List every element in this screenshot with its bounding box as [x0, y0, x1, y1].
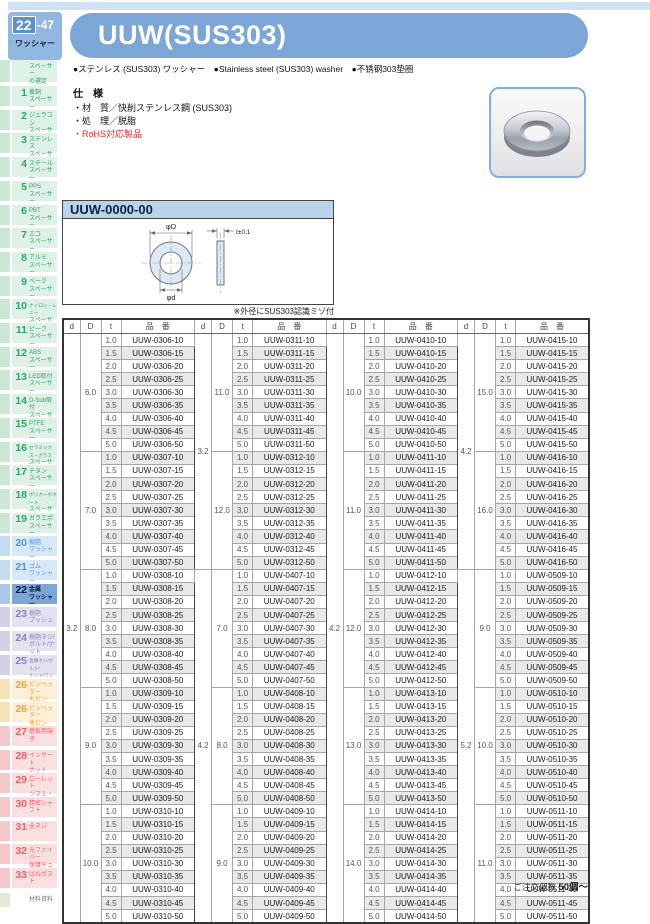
cell-thickness: 4.0 [101, 766, 121, 779]
cell-thickness: 4.0 [233, 648, 253, 661]
cell-part-number: UUW-0309-10 [121, 687, 195, 700]
sidebar-item-number: 17 [13, 467, 27, 486]
cell-thickness: 1.5 [364, 347, 384, 360]
sidebar-item-color-tab [0, 893, 10, 907]
sidebar-item-label: ピンヘッダー角ピン [27, 704, 57, 723]
cell-thickness: 1.5 [233, 582, 253, 595]
cell-part-number: UUW-0413-30 [384, 739, 458, 752]
cell-thickness: 1.0 [101, 569, 121, 582]
sidebar-item-body: 26ピンヘッダー角ピン [12, 702, 57, 722]
sidebar-item-label: チタンスペーサー [27, 467, 57, 486]
cell-thickness: 4.0 [101, 648, 121, 661]
cell-thickness: 2.0 [101, 360, 121, 373]
cell-part-number: UUW-0409-45 [253, 897, 327, 910]
sidebar-item-color-tab [0, 750, 10, 770]
cell-part-number: UUW-0410-35 [384, 399, 458, 412]
sidebar-item-color-tab [0, 844, 10, 864]
sidebar-item-label: 黄銅スペーサー [27, 88, 57, 107]
cell-part-number: UUW-0416-40 [516, 530, 590, 543]
sidebar-item-7-6[interactable]: 7エコスペーサー [0, 228, 57, 248]
cell-outer-diameter: 10.0 [475, 687, 496, 805]
cell-part-number: UUW-0306-45 [121, 425, 195, 438]
cell-part-number: UUW-0409-20 [253, 831, 327, 844]
sidebar-item-2-1[interactable]: 2ジュラコンスペーサー [0, 110, 57, 130]
sidebar-item-color-tab [0, 631, 10, 651]
cell-part-number: UUW-0410-15 [384, 347, 458, 360]
cell-thickness: 1.5 [233, 464, 253, 477]
sidebar-item-17-16[interactable]: 17チタンスペーサー [0, 465, 57, 485]
cell-part-number: UUW-0306-40 [121, 412, 195, 425]
cell-part-number: UUW-0510-40 [516, 766, 590, 779]
cell-part-number: UUW-0414-15 [384, 818, 458, 831]
sidebar-item-23-22[interactable]: 23樹脂ブッシュ [0, 607, 57, 627]
sidebar-item-11-10[interactable]: 11ピークスペーサー [0, 323, 57, 343]
sidebar-item-24-23[interactable]: 24樹脂ネジ/ボルト/ナット [0, 631, 57, 651]
cell-thickness: 1.5 [233, 700, 253, 713]
cell-outer-diameter: 15.0 [475, 334, 496, 452]
col-header-D: D [343, 319, 364, 334]
sidebar-item-number: 2 [13, 111, 27, 130]
cell-part-number: UUW-0414-25 [384, 844, 458, 857]
cell-thickness: 2.0 [233, 478, 253, 491]
sidebar-item-20-19[interactable]: 20樹脂ワッシャー [0, 536, 57, 556]
cell-part-number: UUW-0412-15 [384, 582, 458, 595]
sidebar-item-body: 15PTFEスペーサー [12, 418, 57, 438]
cell-thickness: 1.0 [101, 334, 121, 347]
cell-part-number: UUW-0407-45 [253, 661, 327, 674]
cell-part-number: UUW-0510-10 [516, 687, 590, 700]
spec-block: 仕 様 ・材 質／快削ステンレス鋼 (SUS303) ・処 理／脱脂 ・RoHS… [73, 85, 403, 141]
cell-part-number: UUW-0510-50 [516, 792, 590, 805]
cell-outer-diameter: 12.0 [212, 451, 233, 569]
cell-part-number: UUW-0312-45 [253, 543, 327, 556]
sidebar-item-25-24[interactable]: 25金属ネジ/ボルト/ナット/ワッシャー [0, 655, 57, 675]
cell-part-number: UUW-0311-35 [253, 399, 327, 412]
sidebar-item-color-tab [0, 679, 10, 699]
cell-thickness: 2.5 [101, 726, 121, 739]
sidebar-item-label: PPSスペーサー [27, 182, 57, 201]
cell-thickness: 4.5 [496, 779, 516, 792]
col-header-part: 品 番 [253, 319, 327, 334]
cell-part-number: UUW-0311-30 [253, 386, 327, 399]
cell-part-number: UUW-0307-45 [121, 543, 195, 556]
sidebar-item-number: 8 [13, 253, 27, 272]
cell-part-number: UUW-0310-15 [121, 818, 195, 831]
sidebar-item-14-13[interactable]: 14D-Sub取付スペーサー [0, 394, 57, 414]
cell-thickness: 3.5 [496, 517, 516, 530]
sidebar-item-color-tab [0, 513, 10, 533]
cell-thickness: 2.0 [364, 595, 384, 608]
sidebar-item-color-tab [0, 394, 10, 414]
sidebar-item-color-tab [0, 157, 10, 177]
sidebar-item-number: 23 [13, 609, 27, 628]
cell-thickness: 1.5 [364, 464, 384, 477]
sidebar-item-22-21[interactable]: 22金属ワッシャー [0, 584, 57, 604]
sidebar-item-color-tab [0, 489, 10, 509]
cell-part-number: UUW-0510-20 [516, 713, 590, 726]
cell-part-number: UUW-0416-25 [516, 491, 590, 504]
cell-part-number: UUW-0309-20 [121, 713, 195, 726]
cell-part-number: UUW-0307-50 [121, 556, 195, 569]
sidebar-item-29-29[interactable]: 29ローレットツマミ・ナット [0, 773, 57, 793]
cell-part-number: UUW-0416-10 [516, 451, 590, 464]
sidebar-item-body: 材料資料 [12, 893, 57, 907]
sidebar-item-color-tab [0, 60, 10, 82]
sidebar-item-spacer-selection[interactable]: スペーサーの選定 [0, 60, 57, 82]
sidebar-item-26-26[interactable]: 26ピンヘッダー角ピン [0, 702, 57, 722]
sidebar-item-color-tab [0, 205, 10, 225]
sidebar-item-30-30[interactable]: 30精密シャフト [0, 797, 57, 817]
col-header-D: D [212, 319, 233, 334]
sidebar-item-body: 31全ネジ [12, 821, 57, 841]
sidebar-item-body: 20樹脂ワッシャー [12, 536, 57, 556]
cell-thickness: 5.0 [496, 910, 516, 924]
cell-thickness: 5.0 [364, 556, 384, 569]
cell-thickness: 4.0 [364, 412, 384, 425]
cell-thickness: 3.5 [364, 517, 384, 530]
cell-part-number: UUW-0306-30 [121, 386, 195, 399]
cell-part-number: UUW-0312-40 [253, 530, 327, 543]
sidebar-item-body: スペーサーの選定 [12, 60, 57, 82]
cell-thickness: 2.0 [364, 713, 384, 726]
sidebar-item-10-9[interactable]: 10ナイロン・レニースペーサー [0, 299, 57, 319]
cell-thickness: 2.0 [101, 713, 121, 726]
cell-part-number: UUW-0415-10 [516, 334, 590, 347]
sidebar-item-body: 17チタンスペーサー [12, 465, 57, 485]
cell-thickness: 2.5 [364, 608, 384, 621]
cell-part-number: UUW-0509-10 [516, 569, 590, 582]
sidebar-item-body: 33ばねポスト [12, 868, 57, 888]
sidebar-item-color-tab [0, 133, 10, 153]
sidebar-item-body: 1黄銅スペーサー [12, 86, 57, 106]
cell-part-number: UUW-0310-45 [121, 897, 195, 910]
sidebar-item-number: 22 [13, 585, 27, 604]
sidebar-item-label: スペーサーの選定 [27, 62, 57, 83]
sidebar-item-color-tab [0, 655, 10, 675]
cell-thickness: 1.0 [496, 805, 516, 818]
cell-inner-diameter: 3.2 [63, 334, 80, 924]
cell-thickness: 2.0 [496, 831, 516, 844]
cell-part-number: UUW-0308-20 [121, 595, 195, 608]
drawing-note: ※外径にSUS303認識ミゾ付 [62, 306, 334, 317]
sidebar-item-3-2[interactable]: 3ステンレススペーサー [0, 133, 57, 153]
col-header-D: D [475, 319, 496, 334]
cell-part-number: UUW-0411-35 [384, 517, 458, 530]
col-header-d: d [63, 319, 80, 334]
cell-outer-diameter: 12.0 [343, 569, 364, 687]
product-description-bullets: ●ステンレス (SUS303) ワッシャー ●Stainless steel (… [73, 63, 543, 75]
washer-drawing: φD φd t±0.1 [63, 219, 332, 302]
sidebar-item-label: 金属ワッシャー [27, 585, 57, 604]
cell-thickness: 4.0 [233, 412, 253, 425]
cell-outer-diameter: 9.0 [80, 687, 101, 805]
cell-part-number: UUW-0510-30 [516, 739, 590, 752]
cell-thickness: 2.5 [101, 608, 121, 621]
cell-thickness: 5.0 [496, 792, 516, 805]
cell-part-number: UUW-0306-35 [121, 399, 195, 412]
cell-outer-diameter: 14.0 [343, 805, 364, 923]
cell-part-number: UUW-0407-35 [253, 635, 327, 648]
cell-inner-diameter: 4.2 [195, 569, 212, 923]
cell-thickness: 1.5 [101, 818, 121, 831]
cell-thickness: 3.0 [364, 386, 384, 399]
cell-thickness: 2.5 [233, 726, 253, 739]
col-header-part: 品 番 [516, 319, 590, 334]
cell-part-number: UUW-0409-50 [253, 910, 327, 924]
sidebar-item-number: 21 [13, 562, 27, 581]
cell-thickness: 4.5 [496, 543, 516, 556]
sidebar-item-material-reference[interactable]: 材料資料 [0, 893, 57, 907]
sidebar-item-number: 26 [13, 680, 27, 699]
cell-part-number: UUW-0412-10 [384, 569, 458, 582]
cell-thickness: 2.0 [364, 360, 384, 373]
page-category: ワッシャー [8, 38, 62, 49]
cell-outer-diameter: 9.0 [212, 805, 233, 923]
sidebar-item-12-11[interactable]: 12ABSスペーサー [0, 347, 57, 367]
cell-inner-diameter: 5.2 [458, 569, 475, 923]
cell-thickness: 5.0 [364, 438, 384, 451]
cell-part-number: UUW-0311-45 [253, 425, 327, 438]
sidebar-item-21-20[interactable]: 21ゴムワッシャー [0, 560, 57, 580]
spec-heading: 仕 様 [73, 85, 403, 100]
sidebar-item-31-31[interactable]: 31全ネジ [0, 821, 57, 841]
cell-thickness: 2.5 [364, 491, 384, 504]
sidebar-item-16-15[interactable]: 16セラミックス・ガラススペーサー [0, 442, 57, 462]
cell-thickness: 2.5 [496, 491, 516, 504]
sidebar-item-19-18[interactable]: 19ガラエポスペーサー [0, 513, 57, 533]
sidebar-item-label: ベークスペーサー [27, 277, 57, 296]
cell-thickness: 1.0 [364, 334, 384, 347]
sidebar-item-number: 9 [13, 277, 27, 296]
cell-outer-diameter: 7.0 [212, 569, 233, 687]
col-header-part: 品 番 [121, 319, 195, 334]
washer-photo-graphic [491, 89, 584, 176]
cell-part-number: UUW-0413-45 [384, 779, 458, 792]
cell-thickness: 2.5 [101, 491, 121, 504]
cell-part-number: UUW-0414-20 [384, 831, 458, 844]
cell-part-number: UUW-0307-20 [121, 478, 195, 491]
cell-thickness: 2.5 [233, 844, 253, 857]
cell-thickness: 3.5 [364, 399, 384, 412]
sidebar-item-number: 30 [13, 799, 27, 818]
cell-part-number: UUW-0308-50 [121, 674, 195, 687]
sidebar-item-32-32[interactable]: 32光ファイバー保護チューブ [0, 844, 57, 864]
cell-part-number: UUW-0311-20 [253, 360, 327, 373]
cell-thickness: 5.0 [233, 438, 253, 451]
cell-part-number: UUW-0309-40 [121, 766, 195, 779]
sidebar-item-1-0[interactable]: 1黄銅スペーサー [0, 86, 57, 106]
cell-part-number: UUW-0310-10 [121, 805, 195, 818]
cell-part-number: UUW-0407-10 [253, 569, 327, 582]
sidebar-item-body: 11ピークスペーサー [12, 323, 57, 343]
part-number-format-header: UUW-0000-00 [62, 200, 334, 219]
cell-thickness: 4.5 [364, 425, 384, 438]
cell-thickness: 3.5 [364, 635, 384, 648]
sidebar-item-color-tab [0, 252, 10, 272]
cell-part-number: UUW-0509-40 [516, 648, 590, 661]
cell-part-number: UUW-0511-45 [516, 897, 590, 910]
col-header-d: d [326, 319, 343, 334]
sidebar-item-5-4[interactable]: 5PPSスペーサー [0, 181, 57, 201]
sidebar-item-color-tab [0, 442, 10, 462]
sidebar-item-body: 12ABSスペーサー [12, 347, 57, 367]
cell-thickness: 2.0 [101, 831, 121, 844]
cell-thickness: 2.0 [233, 360, 253, 373]
cell-part-number: UUW-0408-20 [253, 713, 327, 726]
cell-part-number: UUW-0306-50 [121, 438, 195, 451]
cell-part-number: UUW-0412-20 [384, 595, 458, 608]
sidebar-item-label: 樹脂ブッシュ [27, 609, 53, 628]
sidebar-item-number: 7 [13, 230, 27, 249]
cell-part-number: UUW-0312-35 [253, 517, 327, 530]
sidebar-item-body: 8アルミスペーサー [12, 252, 57, 272]
cell-part-number: UUW-0410-45 [384, 425, 458, 438]
cell-thickness: 3.5 [233, 635, 253, 648]
cell-thickness: 2.0 [101, 595, 121, 608]
cell-part-number: UUW-0309-15 [121, 700, 195, 713]
cell-thickness: 1.0 [364, 569, 384, 582]
sidebar-item-4-3[interactable]: 4スチールスペーサー [0, 157, 57, 177]
cell-thickness: 3.0 [101, 386, 121, 399]
title-banner: UUW(SUS303) [70, 13, 588, 58]
cell-thickness: 4.0 [233, 530, 253, 543]
cell-thickness: 1.5 [101, 347, 121, 360]
cell-part-number: UUW-0416-30 [516, 504, 590, 517]
cell-part-number: UUW-0411-30 [384, 504, 458, 517]
cell-part-number: UUW-0310-20 [121, 831, 195, 844]
cell-thickness: 2.0 [233, 595, 253, 608]
sidebar-item-label: スチールスペーサー [27, 159, 57, 178]
cell-part-number: UUW-0407-50 [253, 674, 327, 687]
sidebar-item-body: 22金属ワッシャー [12, 584, 57, 604]
cell-part-number: UUW-0306-10 [121, 334, 195, 347]
cell-thickness: 3.0 [496, 857, 516, 870]
cell-thickness: 1.5 [233, 818, 253, 831]
sidebar-item-number: 32 [13, 846, 27, 865]
cell-part-number: UUW-0509-45 [516, 661, 590, 674]
sidebar-item-27-27[interactable]: 27基板用端子 [0, 726, 57, 746]
sidebar-item-13-12[interactable]: 13LED取付スペーサー [0, 370, 57, 390]
cell-part-number: UUW-0307-35 [121, 517, 195, 530]
cell-thickness: 5.0 [101, 438, 121, 451]
cell-thickness: 4.5 [364, 543, 384, 556]
cell-part-number: UUW-0415-25 [516, 373, 590, 386]
cell-thickness: 3.5 [101, 635, 121, 648]
cell-part-number: UUW-0409-30 [253, 857, 327, 870]
cell-thickness: 2.0 [364, 478, 384, 491]
cell-thickness: 1.0 [364, 805, 384, 818]
cell-part-number: UUW-0310-40 [121, 883, 195, 896]
cell-part-number: UUW-0407-15 [253, 582, 327, 595]
cell-part-number: UUW-0308-10 [121, 569, 195, 582]
sidebar-item-26-25[interactable]: 26ピンヘッダー丸ピン [0, 679, 57, 699]
cell-thickness: 1.0 [233, 334, 253, 347]
cell-thickness: 2.0 [233, 831, 253, 844]
sidebar-item-8-7[interactable]: 8アルミスペーサー [0, 252, 57, 272]
cell-part-number: UUW-0411-50 [384, 556, 458, 569]
cell-thickness: 5.0 [496, 438, 516, 451]
sidebar-item-33-33[interactable]: 33ばねポスト [0, 868, 57, 888]
cell-thickness: 2.5 [233, 491, 253, 504]
sidebar-item-body: 7エコスペーサー [12, 228, 57, 248]
cell-thickness: 5.0 [233, 674, 253, 687]
cell-part-number: UUW-0307-10 [121, 451, 195, 464]
cell-part-number: UUW-0308-25 [121, 608, 195, 621]
cell-part-number: UUW-0416-50 [516, 556, 590, 569]
cell-thickness: 1.0 [101, 687, 121, 700]
cell-thickness: 4.0 [233, 883, 253, 896]
sidebar-item-body: 19ガラエポスペーサー [12, 513, 57, 533]
sidebar-item-number [13, 62, 27, 83]
cell-part-number: UUW-0416-15 [516, 464, 590, 477]
cell-thickness: 3.0 [364, 739, 384, 752]
cell-thickness: 3.0 [364, 857, 384, 870]
sidebar-item-number: 11 [13, 325, 27, 344]
cell-thickness: 2.5 [496, 726, 516, 739]
cell-part-number: UUW-0510-15 [516, 700, 590, 713]
sidebar-item-9-8[interactable]: 9ベークスペーサー [0, 276, 57, 296]
cell-thickness: 1.5 [101, 582, 121, 595]
cell-outer-diameter: 8.0 [212, 687, 233, 805]
cell-part-number: UUW-0416-20 [516, 478, 590, 491]
cell-thickness: 4.0 [101, 883, 121, 896]
cell-part-number: UUW-0411-45 [384, 543, 458, 556]
page-title: UUW(SUS303) [70, 20, 287, 51]
cell-part-number: UUW-0415-30 [516, 386, 590, 399]
cell-part-number: UUW-0408-40 [253, 766, 327, 779]
table-row: 3.26.01.0UUW-0306-103.211.01.0UUW-0311-1… [63, 334, 589, 347]
sidebar-item-color-tab [0, 418, 10, 438]
cell-thickness: 4.5 [364, 897, 384, 910]
cell-part-number: UUW-0413-10 [384, 687, 458, 700]
cell-part-number: UUW-0310-25 [121, 844, 195, 857]
cell-part-number: UUW-0312-50 [253, 556, 327, 569]
cell-thickness: 5.0 [233, 910, 253, 924]
cell-part-number: UUW-0408-25 [253, 726, 327, 739]
cell-thickness: 1.5 [233, 347, 253, 360]
cell-part-number: UUW-0511-15 [516, 818, 590, 831]
cell-part-number: UUW-0411-20 [384, 478, 458, 491]
cell-part-number: UUW-0511-30 [516, 857, 590, 870]
cell-thickness: 2.5 [364, 726, 384, 739]
cell-part-number: UUW-0410-40 [384, 412, 458, 425]
cell-part-number: UUW-0311-10 [253, 334, 327, 347]
sidebar-item-18-17[interactable]: 18ポリカーボネートスペーサー [0, 489, 57, 509]
cell-part-number: UUW-0311-50 [253, 438, 327, 451]
cell-part-number: UUW-0411-10 [384, 451, 458, 464]
cell-part-number: UUW-0407-20 [253, 595, 327, 608]
cell-thickness: 1.5 [101, 464, 121, 477]
cell-thickness: 4.0 [496, 530, 516, 543]
col-header-t: t [101, 319, 121, 334]
cell-part-number: UUW-0308-30 [121, 622, 195, 635]
sidebar-item-28-28[interactable]: 28インサートナット [0, 750, 57, 770]
cell-part-number: UUW-0312-15 [253, 464, 327, 477]
cell-part-number: UUW-0311-40 [253, 412, 327, 425]
cell-thickness: 1.0 [101, 805, 121, 818]
sidebar-item-6-5[interactable]: 6PBTスペーサー [0, 205, 57, 225]
label-thickness: t±0.1 [236, 229, 251, 236]
sidebar-item-body: 29ローレットツマミ・ナット [12, 773, 57, 793]
sidebar-item-color-tab [0, 797, 10, 817]
sidebar-item-label: ゴムワッシャー [27, 562, 57, 581]
sidebar-item-body: 24樹脂ネジ/ボルト/ナット [12, 631, 57, 651]
sidebar-item-color-tab [0, 536, 10, 556]
sidebar-item-label: 光ファイバー保護チューブ [27, 846, 57, 865]
sidebar-item-15-14[interactable]: 15PTFEスペーサー [0, 418, 57, 438]
cell-thickness: 3.0 [233, 622, 253, 635]
cell-thickness: 4.5 [101, 897, 121, 910]
